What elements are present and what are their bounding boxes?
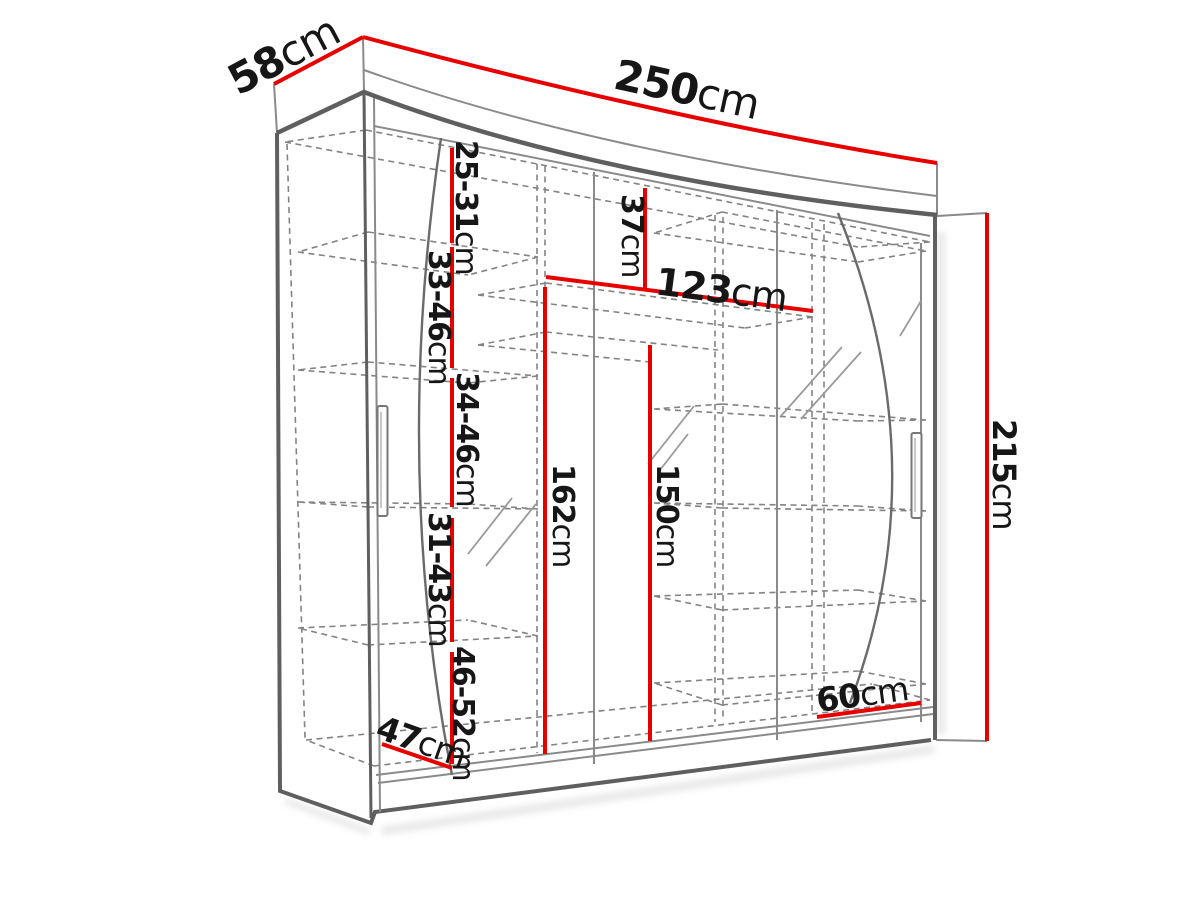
divider-hidden-lines	[537, 164, 824, 753]
label-gap-31-43: 31-43cm	[421, 512, 456, 647]
top-fascia-edge	[277, 92, 937, 215]
label-top-37: 37cm	[614, 194, 649, 277]
dimension-labels: 58cm 250cm 215cm 25-31cm 33-46cm 34-46cm…	[220, 6, 1023, 781]
label-width-123: 123cm	[653, 259, 790, 320]
ceiling-hidden-lines	[285, 130, 930, 247]
mirror-glints	[468, 301, 921, 566]
right-door-handle	[912, 433, 922, 518]
wardrobe-dimension-diagram: 58cm 250cm 215cm 25-31cm 33-46cm 34-46cm…	[0, 0, 1200, 900]
right-door-mirror-arc	[838, 213, 892, 703]
label-height-162: 162cm	[545, 464, 580, 567]
label-height-150: 150cm	[649, 464, 684, 567]
right-handle-bar	[912, 433, 922, 518]
label-gap-34-46: 34-46cm	[449, 372, 484, 507]
back-left-corner-line	[287, 144, 305, 738]
label-height-215: 215cm	[985, 419, 1023, 530]
left-door-handle	[378, 406, 388, 516]
label-depth-58: 58cm	[220, 6, 348, 105]
front-left-edge	[364, 92, 371, 818]
dimension-lines	[274, 37, 987, 768]
left-handle-bar	[378, 406, 388, 516]
diagram-canvas: 58cm 250cm 215cm 25-31cm 33-46cm 34-46cm…	[0, 0, 1200, 900]
glint-lines	[468, 301, 921, 566]
label-gap-33-46: 33-46cm	[421, 250, 456, 385]
